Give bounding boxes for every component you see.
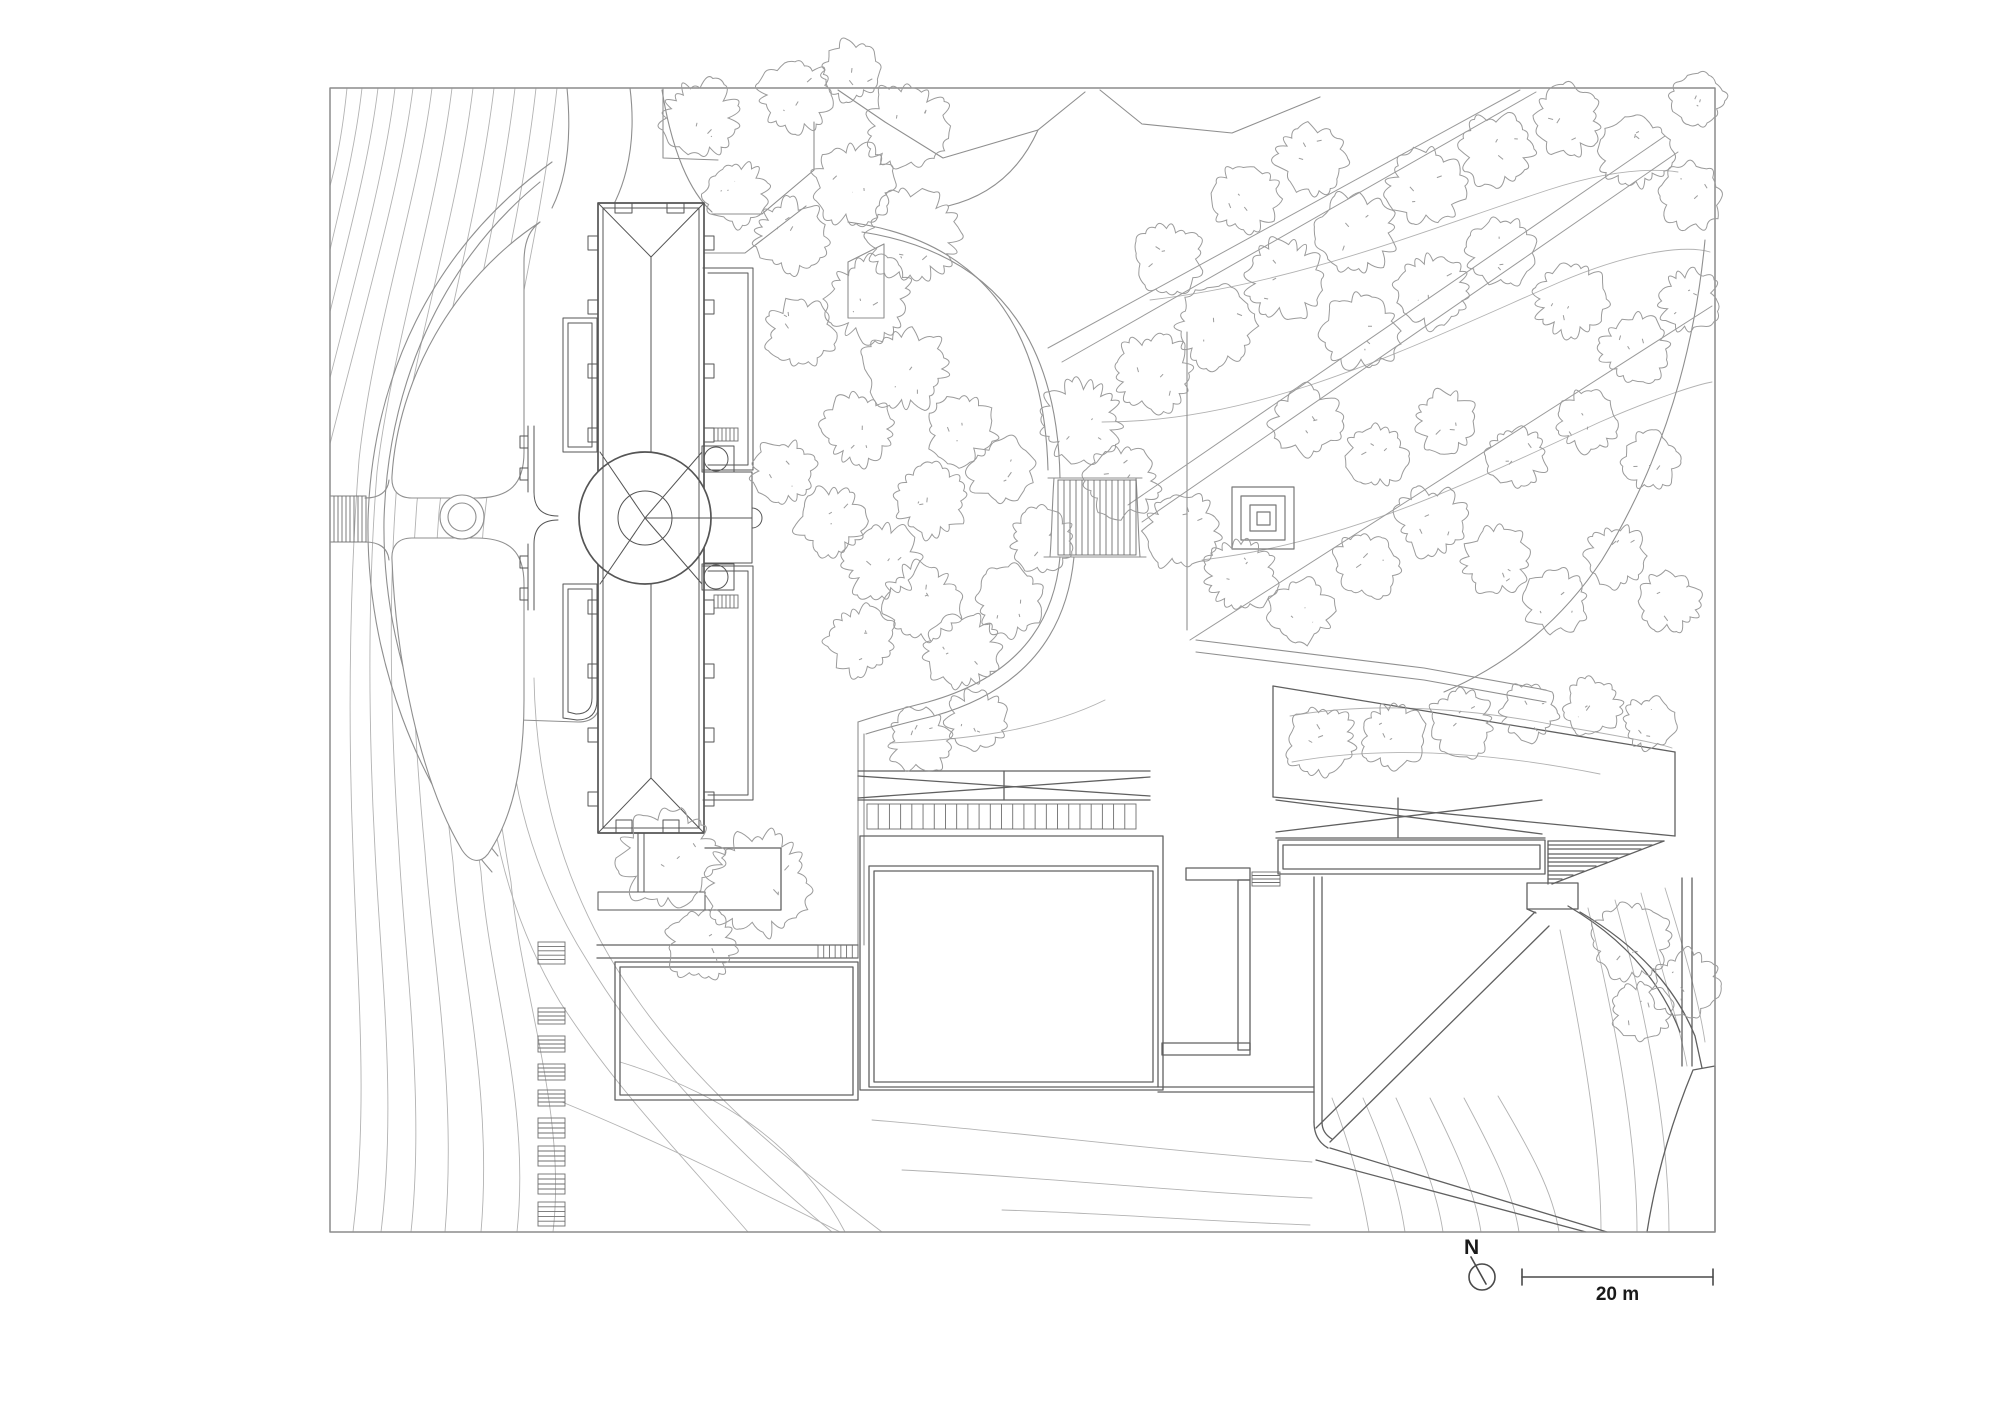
legend-marks (1471, 1257, 1713, 1285)
site-plan-page: N 20 m (0, 0, 2000, 1414)
contour-lines (330, 88, 1712, 1232)
north-arrow-label: N (1464, 1236, 1479, 1260)
forest-allees (1048, 90, 1712, 640)
plan-frame (330, 88, 1715, 1232)
lawn-parterres (392, 222, 540, 860)
site-plan-drawing (0, 0, 2000, 1414)
modern-buildings (597, 686, 1715, 1232)
scale-bar-label: 20 m (1560, 1284, 1675, 1306)
tree-canopies (615, 38, 1728, 1042)
square-monument (1232, 487, 1294, 549)
